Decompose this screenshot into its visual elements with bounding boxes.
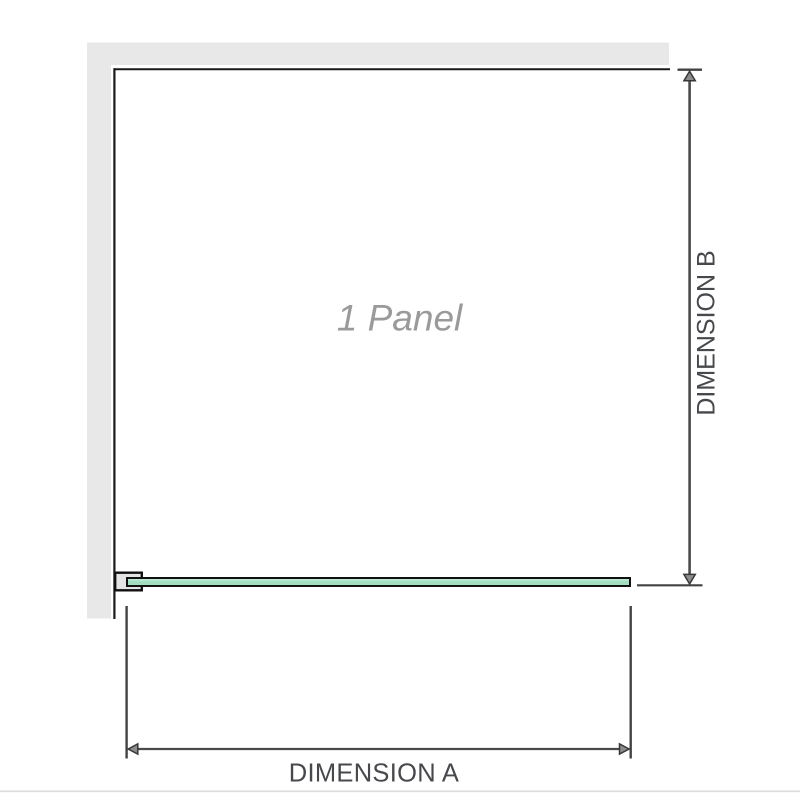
svg-text:DIMENSION B: DIMENSION B xyxy=(693,250,721,415)
svg-text:DIMENSION A: DIMENSION A xyxy=(289,760,460,788)
svg-text:1 Panel: 1 Panel xyxy=(337,298,464,339)
